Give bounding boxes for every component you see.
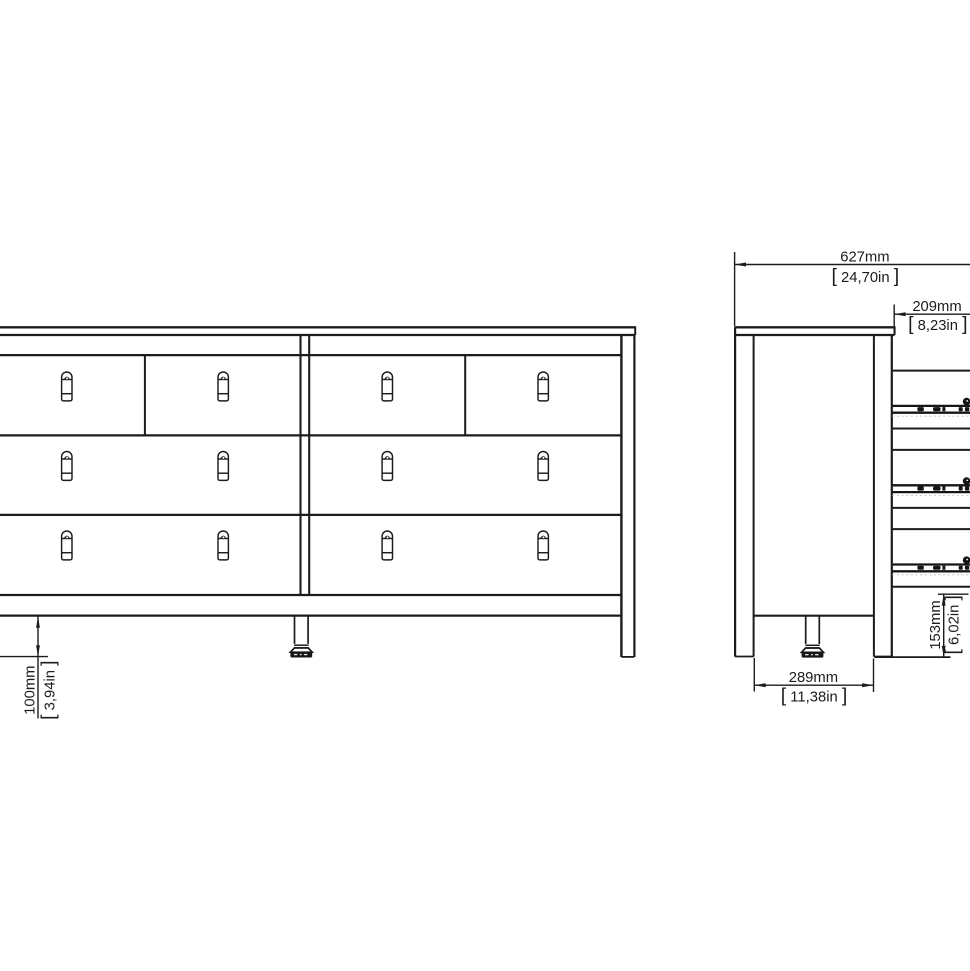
svg-text:209mm: 209mm [912,299,961,315]
svg-text:153mm: 153mm [928,600,944,649]
svg-text:627mm: 627mm [840,249,889,265]
svg-text:289mm: 289mm [789,670,838,686]
svg-text:100mm: 100mm [23,666,39,715]
